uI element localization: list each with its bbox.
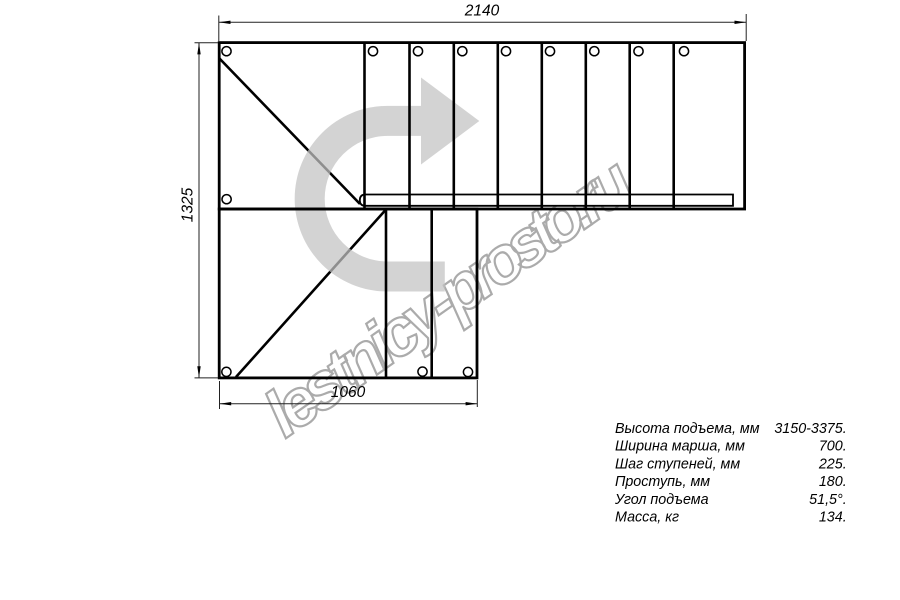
- svg-text:51,5°.: 51,5°.: [809, 492, 847, 508]
- svg-text:225.: 225.: [818, 456, 847, 472]
- svg-text:3150-3375.: 3150-3375.: [774, 421, 846, 437]
- svg-text:Проступь, мм: Проступь, мм: [615, 474, 710, 490]
- svg-text:1325: 1325: [180, 187, 197, 222]
- svg-text:Высота подъема, мм: Высота подъема, мм: [615, 421, 760, 437]
- svg-text:180.: 180.: [819, 474, 847, 490]
- svg-text:Шаг ступеней, мм: Шаг ступеней, мм: [615, 456, 740, 472]
- svg-text:134.: 134.: [819, 510, 847, 526]
- svg-text:Ширина марша, мм: Ширина марша, мм: [615, 439, 745, 455]
- svg-text:Угол подъема: Угол подъема: [614, 492, 709, 508]
- svg-text:1060: 1060: [331, 384, 366, 401]
- svg-text:Масса, кг: Масса, кг: [615, 510, 679, 526]
- svg-text:700.: 700.: [819, 439, 847, 455]
- svg-text:2140: 2140: [464, 3, 500, 20]
